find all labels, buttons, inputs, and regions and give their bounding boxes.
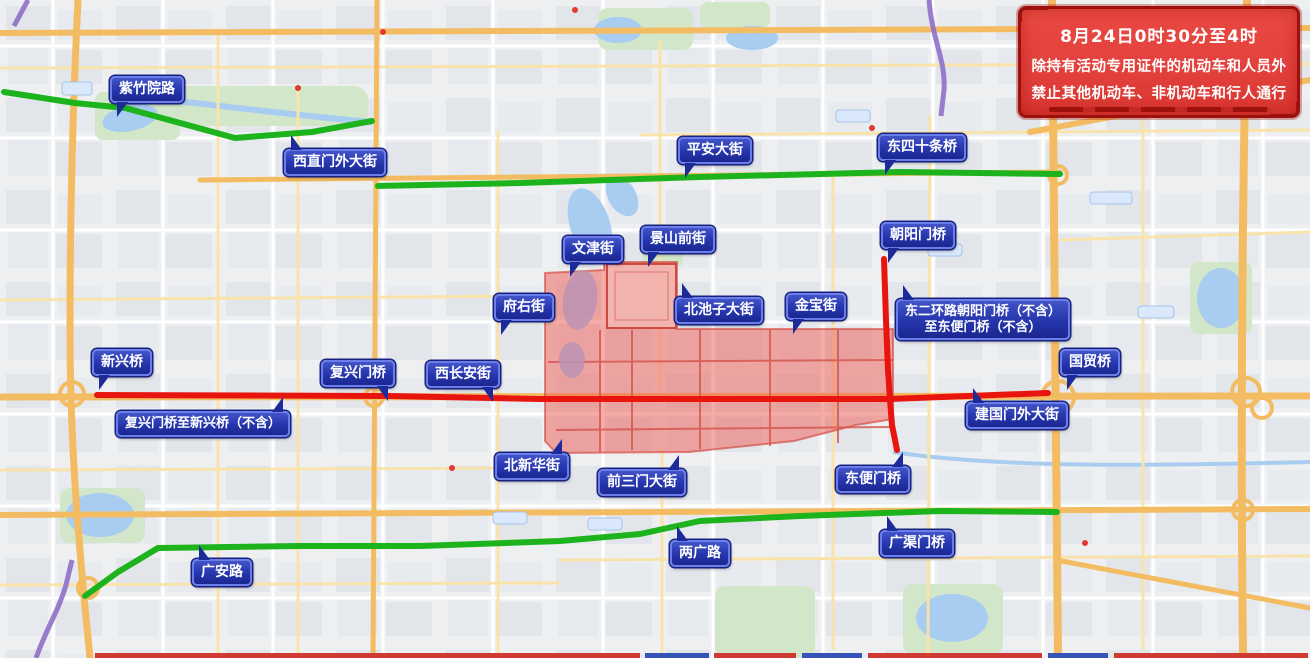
notice-line-1: 8月24日0时30分至4时 (1021, 22, 1297, 47)
map-label-dongbianmen-qiao: 东便门桥 (836, 466, 910, 493)
map-label-guangqumen-qiao: 广渠门桥 (880, 530, 954, 557)
map-label-beichizi-dajie: 北池子大街 (675, 297, 763, 324)
map-label-guangan-lu: 广安路 (192, 559, 252, 586)
traffic-map[interactable]: 紫竹院路西直门外大街平安大街东四十条桥文津街景山前街府右街北池子大街金宝街朝阳门… (0, 0, 1310, 658)
map-label-xichangan-jie: 西长安街 (426, 361, 500, 388)
map-label-wenjin-jie: 文津街 (563, 236, 623, 263)
notice-line-2: 除持有活动专用证件的机动车和人员外 (1021, 55, 1297, 76)
map-label-dongerhuan-note: 东二环路朝阳门桥（不含）至东便门桥（不含） (896, 299, 1070, 340)
map-label-zizhuyuan-lu: 紫竹院路 (110, 76, 184, 103)
notice-line-3: 禁止其他机动车、非机动车和行人通行 (1021, 82, 1297, 103)
map-label-jingshanqian-jie: 景山前街 (641, 226, 715, 253)
map-label-dongsishitiao-qiao: 东四十条桥 (878, 134, 966, 161)
map-label-qiansanmen-dajie: 前三门大街 (598, 469, 686, 496)
map-label-xizhimenwai-dajie: 西直门外大街 (284, 149, 386, 176)
map-label-pingan-dajie: 平安大街 (678, 137, 752, 164)
map-label-liangguang-lu: 两广路 (670, 540, 730, 567)
map-label-jinbao-jie: 金宝街 (786, 293, 846, 320)
map-label-fuxingmen-qiao: 复兴门桥 (321, 360, 395, 387)
map-label-beixinhua-jie: 北新华街 (495, 453, 569, 480)
map-label-jianguomenwai-dajie: 建国门外大街 (966, 402, 1068, 429)
notice-trim-bar (1049, 107, 1270, 112)
map-label-fuxingmen-xinxing-note: 复兴门桥至新兴桥（不含） (116, 411, 290, 437)
map-label-chaoyangmen-qiao: 朝阳门桥 (881, 222, 955, 249)
map-label-guomao-qiao: 国贸桥 (1060, 349, 1120, 376)
map-label-xinxing-qiao: 新兴桥 (92, 349, 152, 376)
map-label-fuyou-jie: 府右街 (494, 294, 554, 321)
notice-box: 8月24日0时30分至4时 除持有活动专用证件的机动车和人员外 禁止其他机动车、… (1018, 6, 1300, 118)
